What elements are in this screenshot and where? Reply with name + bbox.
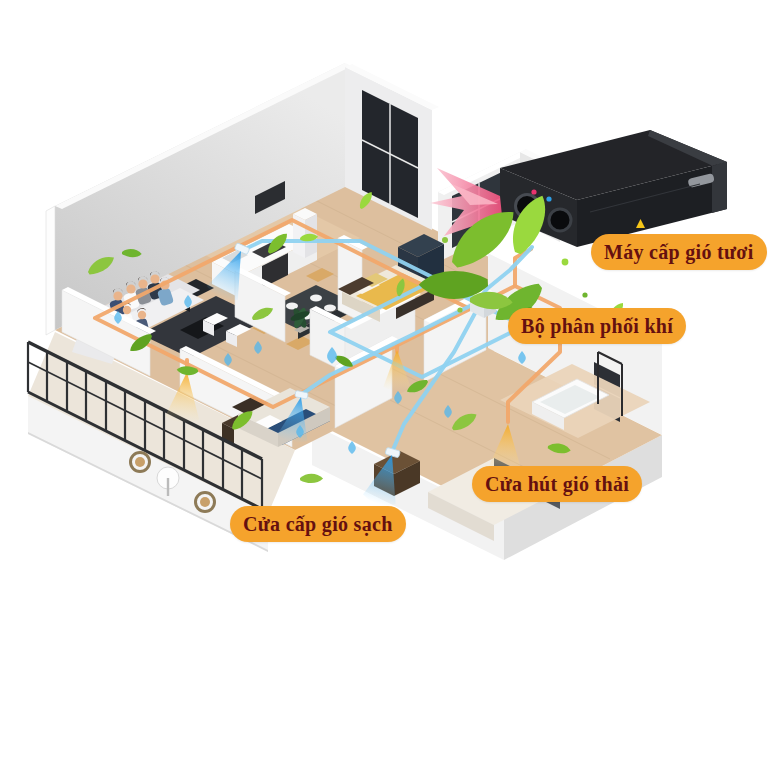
label-exhaust-air-vent: Cửa hút gió thải (472, 466, 642, 502)
label-fresh-air-unit-text: Máy cấp gió tươi (604, 241, 754, 263)
label-supply-air-vent: Cửa cấp gió sạch (230, 506, 406, 542)
hvac-apartment-diagram: Máy cấp gió tươi Bộ phân phối khí Cửa hú… (0, 0, 768, 768)
label-exhaust-air-vent-text: Cửa hút gió thải (485, 473, 629, 495)
label-air-distributor: Bộ phân phối khí (508, 308, 686, 344)
leaf-icon (299, 471, 323, 487)
label-supply-air-vent-text: Cửa cấp gió sạch (243, 513, 393, 535)
label-fresh-air-unit: Máy cấp gió tươi (591, 234, 767, 270)
apartment-illustration (0, 0, 768, 768)
label-air-distributor-text: Bộ phân phối khí (521, 315, 673, 337)
